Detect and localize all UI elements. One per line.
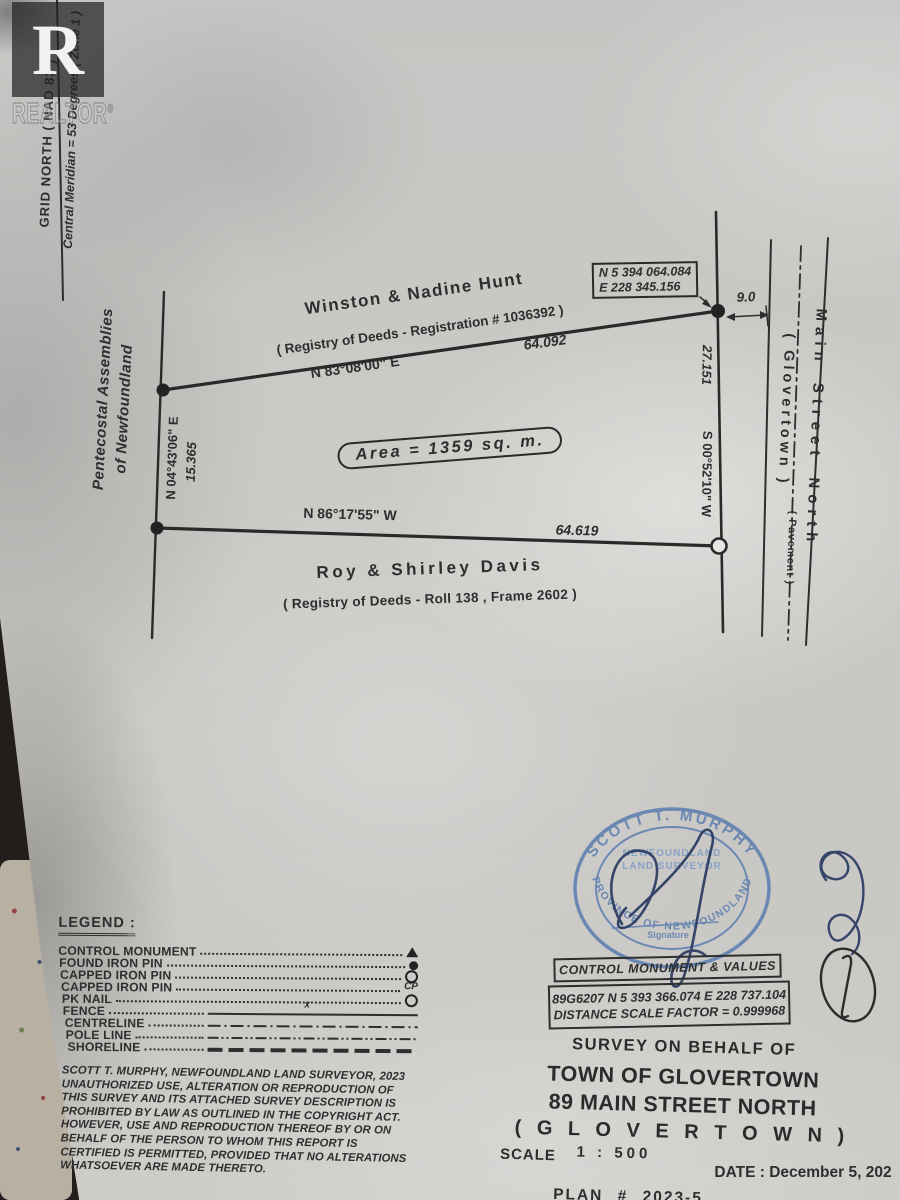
surveyor-stamp: SCOTT T. MURPHY PROVINCE OF NEWFOUNDLAND… xyxy=(575,807,769,967)
copyright-notice: SCOTT T. MURPHY, NEWFOUNDLAND LAND SURVE… xyxy=(60,1064,442,1180)
pk-nail-icon xyxy=(405,994,418,1007)
corner-pin-sw xyxy=(151,522,164,535)
initials-ink xyxy=(821,852,864,954)
registered-mark: ® xyxy=(107,101,113,115)
realtor-logo: R xyxy=(12,2,104,97)
realtor-logo-letter: R xyxy=(32,14,84,86)
centreline-icon xyxy=(208,1025,418,1028)
shoreline-icon xyxy=(208,1048,418,1053)
north-boundary-line xyxy=(163,311,718,390)
survey-plan-photo: SCOTT T. MURPHY PROVINCE OF NEWFOUNDLAND… xyxy=(0,0,900,1200)
pole-line-icon xyxy=(208,1037,418,1040)
east-boundary-line xyxy=(716,212,723,632)
stamp-signature-caption: Signature xyxy=(647,930,689,940)
control-monument-icon xyxy=(406,947,418,957)
south-boundary-line xyxy=(157,528,719,546)
corner-pin-nw xyxy=(157,384,170,397)
west-boundary-line xyxy=(152,292,164,638)
fence-line-icon: x xyxy=(208,1013,418,1016)
title-block: SURVEY ON BEHALF OF TOWN OF GLOVERTOWN 8… xyxy=(499,1033,868,1149)
pavement-east-edge xyxy=(806,238,828,645)
legend-title: LEGEND : xyxy=(58,915,135,937)
offset-dim-tick xyxy=(766,306,768,326)
offset-dim-arrow-left xyxy=(726,313,735,321)
control-monument-box: CONTROL MONUMENT & VALUES 89G6207 N 5 39… xyxy=(547,953,790,1029)
found-iron-pin-icon xyxy=(409,961,418,970)
capped-iron-pin-cp-icon: CP xyxy=(404,981,418,992)
realtor-wordmark: REALTOR® xyxy=(12,98,114,131)
realtor-watermark: R REALTOR® xyxy=(12,2,166,131)
pavement-west-edge xyxy=(762,240,771,636)
page-mark-circle xyxy=(813,942,883,1027)
corner-pin-ne xyxy=(711,304,725,318)
corner-pin-se-open xyxy=(712,539,727,554)
legend: LEGEND : CONTROL MONUMENT FOUND IRON PIN… xyxy=(58,914,419,1056)
street-centreline xyxy=(788,246,801,640)
control-monument-title: CONTROL MONUMENT & VALUES xyxy=(553,954,781,983)
legend-row-shoreline: SHORELINE xyxy=(68,1041,418,1055)
